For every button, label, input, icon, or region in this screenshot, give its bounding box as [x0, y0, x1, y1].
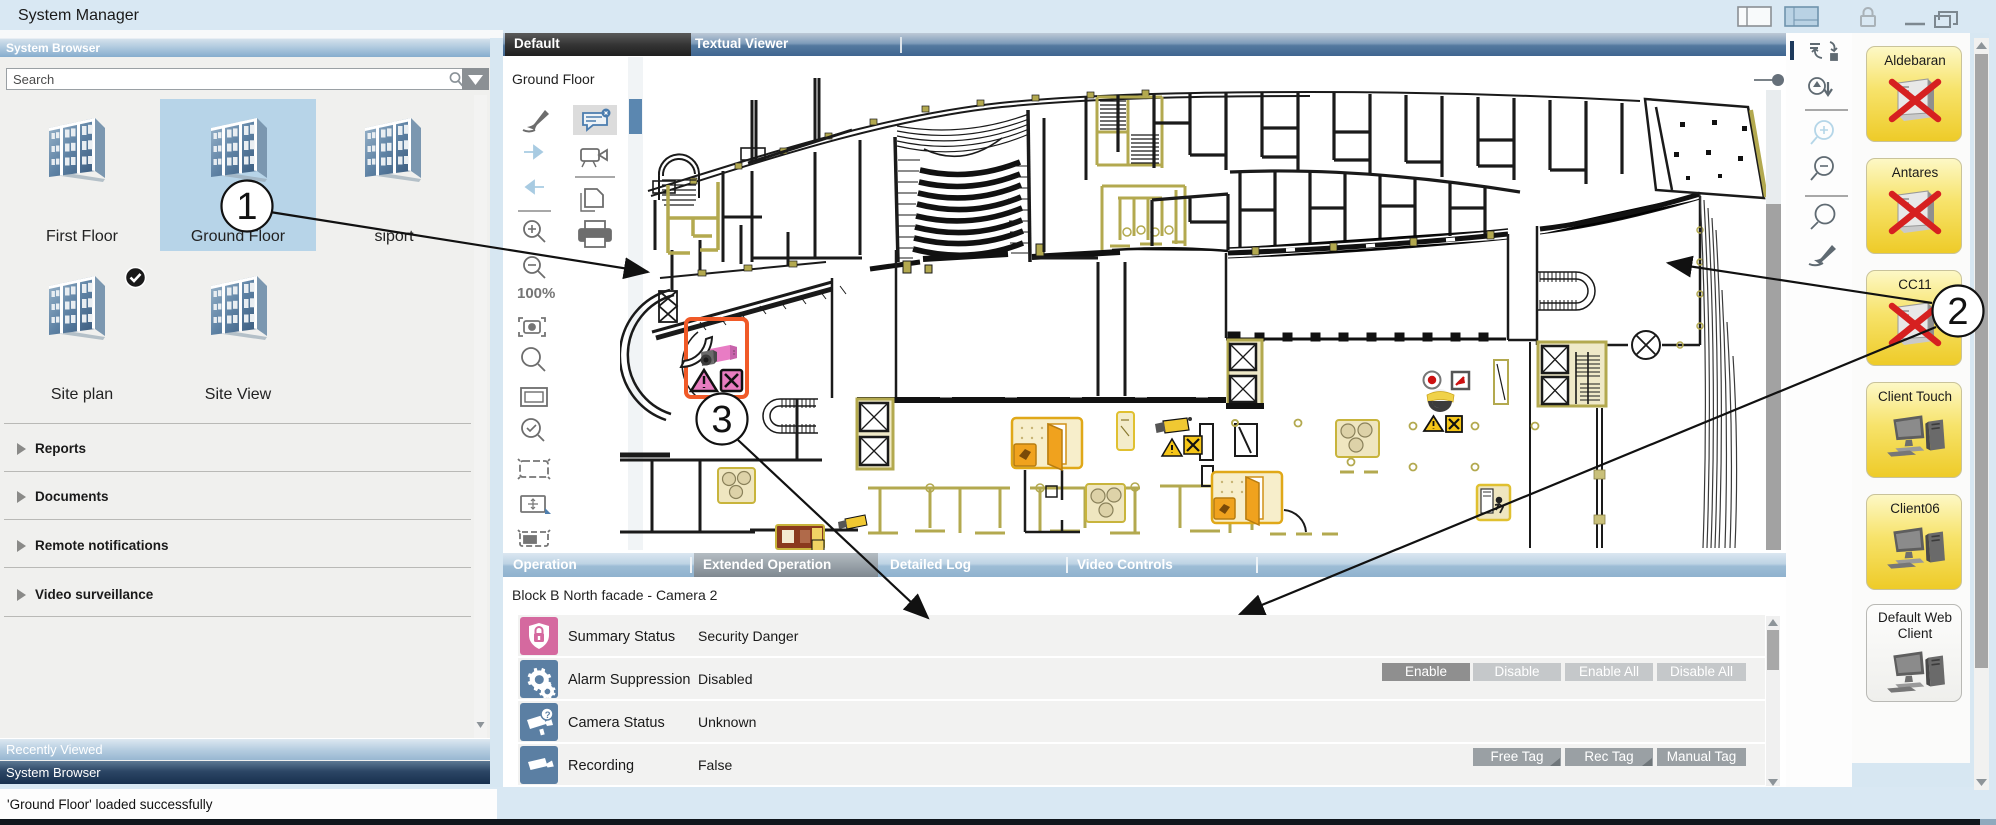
svg-text:100%: 100%: [517, 285, 555, 302]
svg-text:?: ?: [545, 710, 551, 721]
